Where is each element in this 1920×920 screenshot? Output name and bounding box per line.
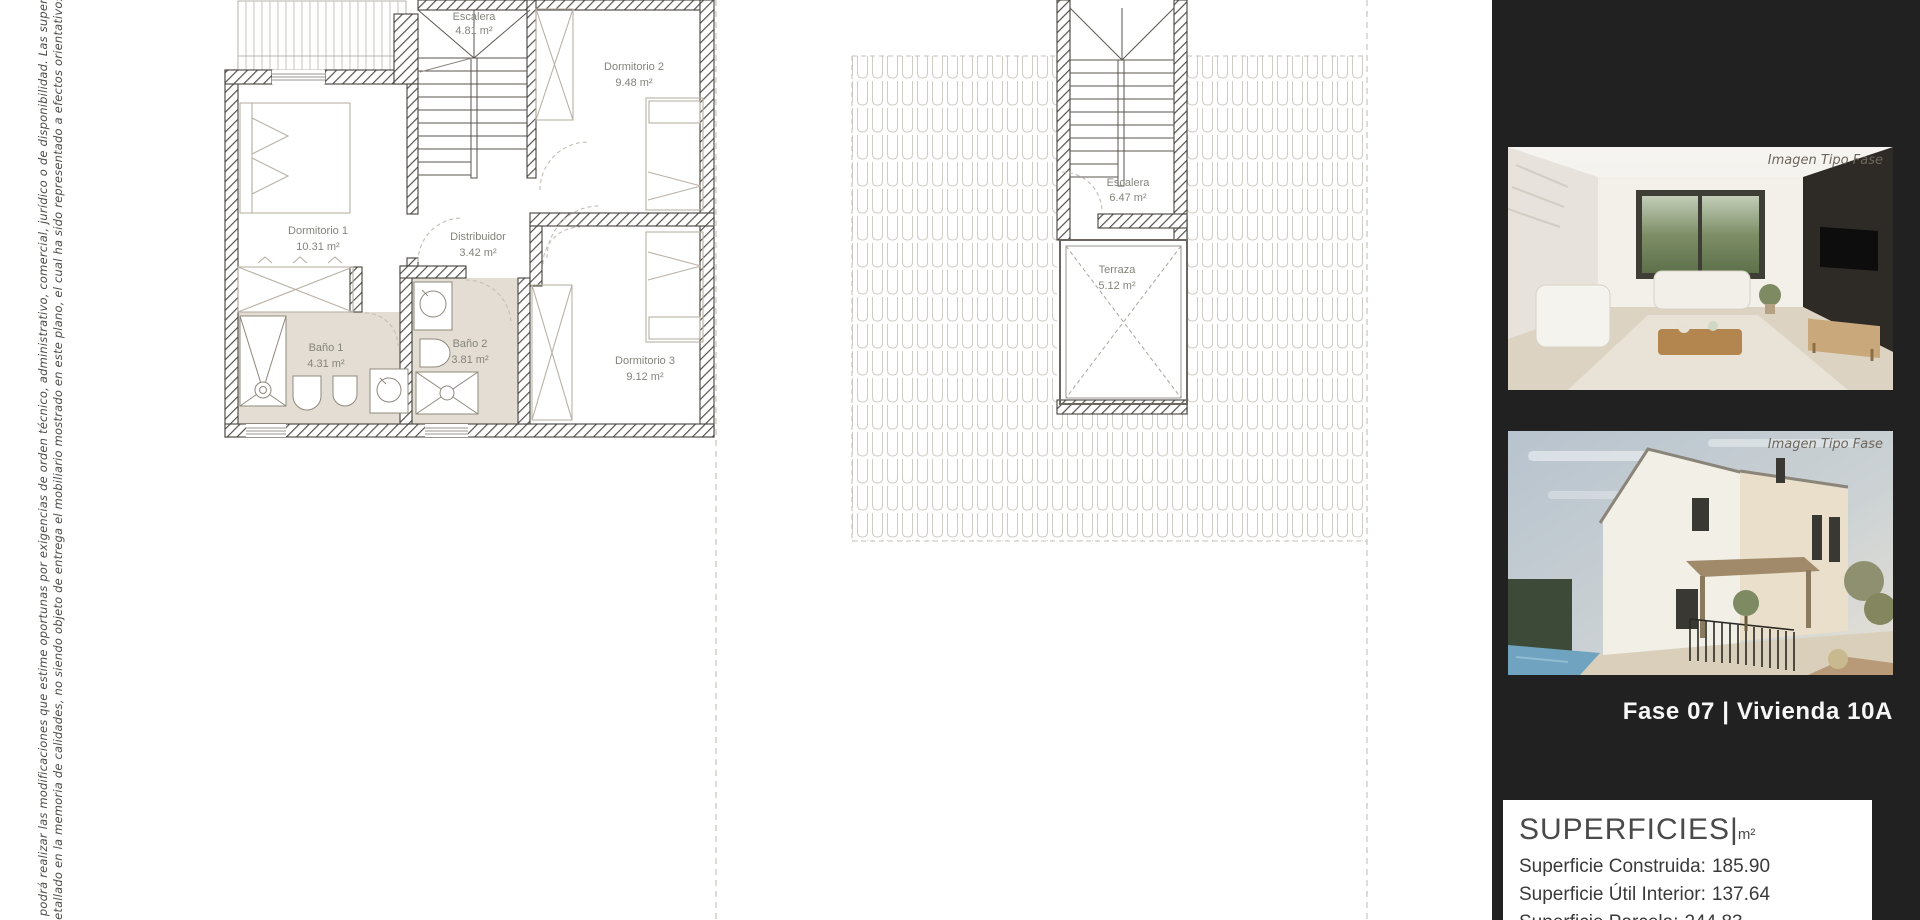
room-label: Dormitorio 1 (288, 225, 348, 237)
exterior-photo: Imagen Tipo Fase (1508, 431, 1893, 675)
room-area: 10.31 m² (296, 241, 340, 253)
room-area: 3.42 m² (459, 247, 497, 259)
terrace-decking (238, 1, 406, 70)
room-area: 9.12 m² (626, 371, 664, 383)
roof-plan: Escalera 6.47 m² Terraza 5.12 m² (852, 0, 1367, 541)
superficie-parcela-value: 244.83 (1684, 912, 1742, 920)
superficies-separator: | (1730, 813, 1738, 846)
superficie-construida-row: Superficie Construida:185.90 (1519, 853, 1854, 881)
phase-unit-label: Fase 07 | Vivienda 10A (1623, 698, 1893, 726)
floor-plans-drawing: Escalera 4.81 m² Dormitorio 2 9.48 m² Do… (0, 0, 1490, 920)
room-label: Baño 1 (309, 342, 344, 354)
room-area: 9.48 m² (615, 77, 653, 89)
plan-sheet: presarial SL podrá realizar las modifica… (0, 0, 1920, 920)
superficie-util-label: Superficie Útil Interior: (1519, 884, 1706, 905)
superficie-util-row: Superficie Útil Interior:137.64 (1519, 881, 1854, 909)
superficie-parcela-row: Superficie Parcela:244.83 (1519, 909, 1854, 920)
photo-caption: Imagen Tipo Fase (1768, 153, 1883, 168)
stairwell-walls (1057, 0, 1187, 414)
room-label: Terraza (1099, 264, 1137, 276)
floor-plan-level1: Escalera 4.81 m² Dormitorio 2 9.48 m² Do… (225, 0, 714, 437)
room-area: 3.81 m² (451, 354, 489, 366)
room-area: 4.31 m² (307, 358, 345, 370)
superficies-panel: SUPERFICIES|m² Superficie Construida:185… (1503, 800, 1872, 920)
roof-tiles-right (1187, 56, 1367, 541)
room-area: 4.81 m² (455, 25, 493, 37)
sidebar: Imagen Tipo Fase (1492, 0, 1920, 920)
superficies-title: SUPERFICIES (1519, 813, 1730, 846)
interior-photo: Imagen Tipo Fase (1508, 147, 1893, 390)
room-label: Dormitorio 3 (615, 355, 675, 367)
room-label: Escalera (453, 11, 497, 23)
superficie-util-value: 137.64 (1712, 884, 1770, 905)
stairwell-stairs (1070, 8, 1174, 186)
interior-render (1508, 147, 1893, 390)
room-area: 5.12 m² (1098, 280, 1136, 292)
superficie-construida-label: Superficie Construida: (1519, 856, 1706, 877)
room-labels-roof: Escalera 6.47 m² Terraza 5.12 m² (1098, 177, 1150, 292)
superficies-unit: m² (1738, 826, 1756, 843)
superficies-title-row: SUPERFICIES|m² (1519, 813, 1854, 847)
room-label: Distribuidor (450, 231, 506, 243)
photo-caption: Imagen Tipo Fase (1768, 437, 1883, 452)
room-label: Dormitorio 2 (604, 61, 664, 73)
room-label: Baño 2 (453, 338, 488, 350)
room-label: Escalera (1107, 177, 1151, 189)
roof-tiles-left (852, 56, 1057, 541)
superficie-parcela-label: Superficie Parcela: (1519, 912, 1678, 920)
roof-tiles-bottom (1057, 414, 1187, 541)
room-area: 6.47 m² (1109, 192, 1147, 204)
exterior-render (1508, 431, 1893, 675)
superficie-construida-value: 185.90 (1712, 856, 1770, 877)
